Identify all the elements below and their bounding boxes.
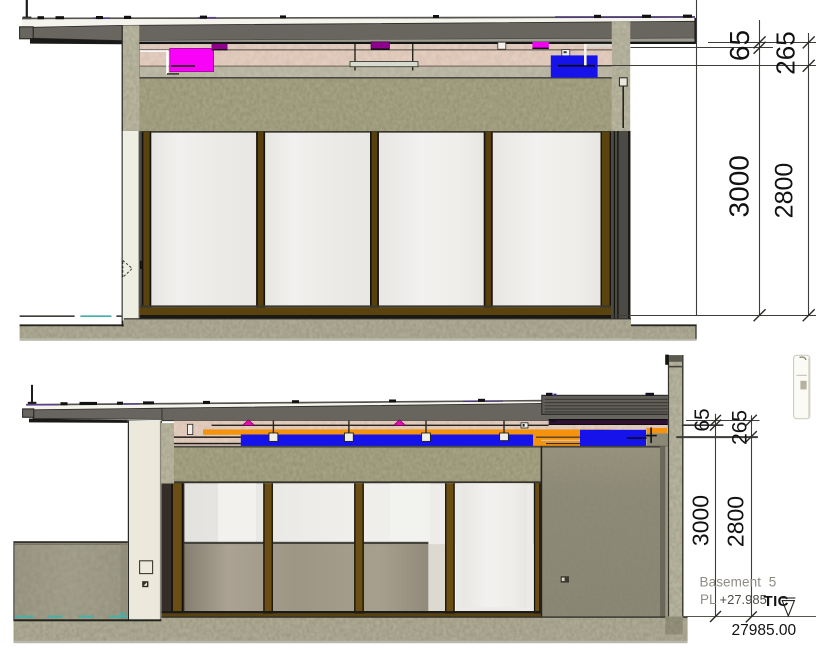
svg-text:2800: 2800 bbox=[771, 163, 799, 219]
svg-text:3000: 3000 bbox=[687, 495, 713, 546]
svg-text:265: 265 bbox=[771, 31, 801, 74]
svg-text:65: 65 bbox=[724, 30, 755, 61]
svg-text:265: 265 bbox=[729, 410, 752, 445]
svg-text:+27.985: +27.985 bbox=[720, 592, 767, 607]
svg-text:PL: PL bbox=[700, 592, 717, 607]
svg-text:2800: 2800 bbox=[722, 496, 748, 547]
svg-text:3000: 3000 bbox=[724, 155, 755, 217]
svg-text:Basement 5: Basement 5 bbox=[700, 575, 777, 590]
svg-text:27985.00: 27985.00 bbox=[732, 622, 797, 639]
svg-text:65: 65 bbox=[691, 408, 714, 431]
